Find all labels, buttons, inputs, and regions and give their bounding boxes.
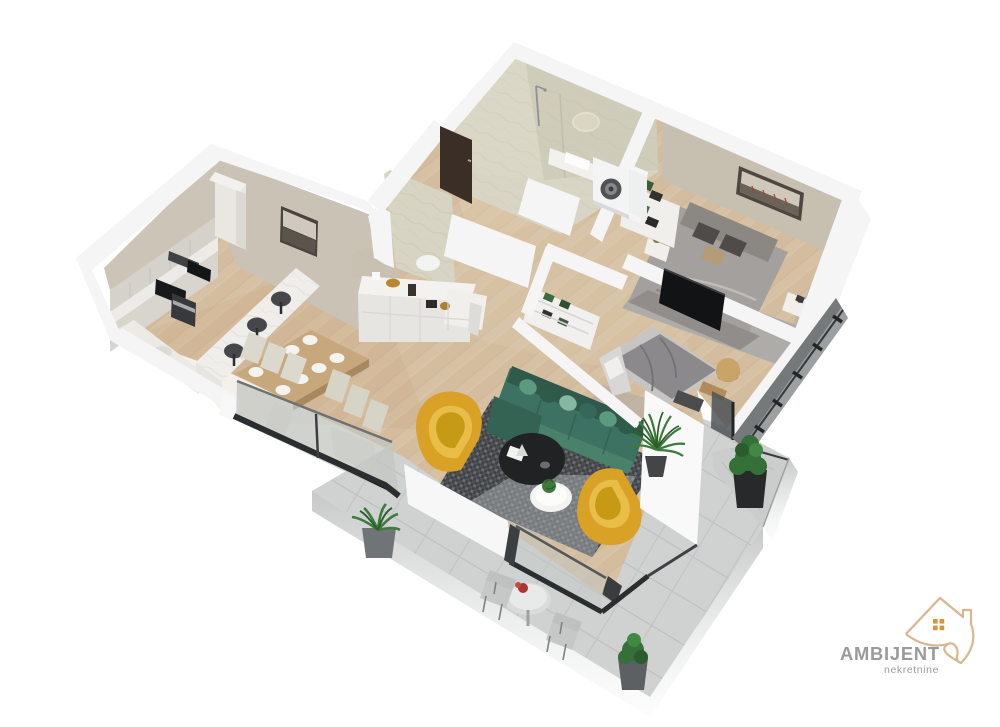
svg-text:AMBIJENT: AMBIJENT: [840, 643, 940, 664]
svg-text:nekretnine: nekretnine: [884, 664, 939, 676]
